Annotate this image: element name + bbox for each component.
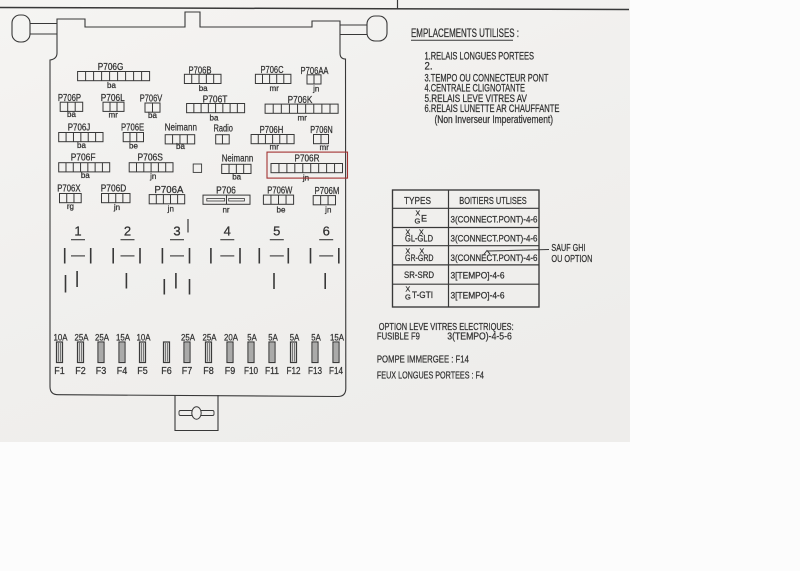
svg-text:mr: mr xyxy=(320,143,330,152)
svg-text:be: be xyxy=(129,142,138,151)
svg-text:P706F: P706F xyxy=(71,153,96,164)
svg-text:Neimann: Neimann xyxy=(165,123,197,134)
svg-text:15A: 15A xyxy=(116,333,130,343)
svg-text:1.RELAIS LONGUES PORTEES: 1.RELAIS LONGUES PORTEES xyxy=(425,50,535,62)
svg-text:SR-SRD: SR-SRD xyxy=(404,270,434,281)
svg-text:P706X: P706X xyxy=(57,184,81,195)
svg-text:20A: 20A xyxy=(224,333,238,343)
svg-text:P706R: P706R xyxy=(295,154,320,165)
svg-text:F1: F1 xyxy=(54,365,65,377)
svg-text:P706AA: P706AA xyxy=(301,66,329,77)
svg-text:Radio: Radio xyxy=(213,123,233,134)
svg-text:3[TEMPO]-4-6: 3[TEMPO]-4-6 xyxy=(451,291,505,302)
svg-text:F9: F9 xyxy=(225,365,236,377)
svg-text:jn: jn xyxy=(167,205,174,214)
svg-text:P706S: P706S xyxy=(137,153,163,164)
svg-text:OU OPTION: OU OPTION xyxy=(551,253,592,265)
svg-text:1: 1 xyxy=(74,224,81,239)
svg-text:FEUX LONGUES PORTEES : F4: FEUX LONGUES PORTEES : F4 xyxy=(377,371,484,382)
svg-text:jn: jn xyxy=(113,203,120,212)
svg-text:T-GTI: T-GTI xyxy=(412,290,433,301)
svg-text:POMPE IMMERGEE : F14: POMPE IMMERGEE : F14 xyxy=(377,355,469,366)
svg-text:mr: mr xyxy=(270,143,280,152)
svg-text:jn: jn xyxy=(324,206,331,215)
svg-text:BOITIERS UTLISES: BOITIERS UTLISES xyxy=(459,196,527,207)
svg-text:3(CONNECT.PONT)-4-6: 3(CONNECT.PONT)-4-6 xyxy=(451,233,538,244)
svg-text:ba: ba xyxy=(77,141,86,150)
svg-text:2: 2 xyxy=(124,224,131,239)
svg-text:P706J: P706J xyxy=(68,123,91,134)
svg-text:ba: ba xyxy=(67,110,76,119)
svg-text:(Non Inverseur Imperativement): (Non Inverseur Imperativement) xyxy=(435,114,554,126)
svg-text:3(CONNECT.PONT)-4-6: 3(CONNECT.PONT)-4-6 xyxy=(451,253,538,264)
svg-text:nr: nr xyxy=(222,206,229,215)
svg-text:4: 4 xyxy=(224,224,231,239)
svg-text:P706D: P706D xyxy=(101,184,127,195)
svg-text:E: E xyxy=(421,214,427,224)
svg-text:F8: F8 xyxy=(203,365,214,377)
svg-text:25A: 25A xyxy=(181,333,195,343)
svg-text:F7: F7 xyxy=(182,365,193,377)
svg-text:10A: 10A xyxy=(137,333,151,343)
svg-text:F12: F12 xyxy=(287,365,301,377)
svg-text:rg: rg xyxy=(67,202,74,211)
svg-text:10A: 10A xyxy=(54,333,68,343)
svg-text:mr: mr xyxy=(298,114,308,123)
svg-text:ba: ba xyxy=(199,84,208,93)
svg-text:G: G xyxy=(405,293,411,302)
svg-text:ba: ba xyxy=(176,142,185,151)
svg-text:G: G xyxy=(415,217,421,226)
svg-text:F4: F4 xyxy=(117,365,128,377)
svg-text:6: 6 xyxy=(323,224,330,239)
svg-text:FUSIBLE F9: FUSIBLE F9 xyxy=(377,332,420,343)
svg-text:Neimann: Neimann xyxy=(222,154,254,165)
svg-text:TYPES: TYPES xyxy=(404,196,431,207)
svg-text:F6: F6 xyxy=(161,365,172,377)
svg-text:ba: ba xyxy=(232,173,241,182)
svg-text:25A: 25A xyxy=(203,333,217,343)
svg-text:ba: ba xyxy=(107,81,116,90)
svg-text:3[TEMPO]-4-6: 3[TEMPO]-4-6 xyxy=(451,270,505,281)
svg-text:SAUF GHI: SAUF GHI xyxy=(551,242,585,254)
svg-text:ba: ba xyxy=(148,111,157,120)
svg-text:EMPLACEMENTS UTILISES :: EMPLACEMENTS UTILISES : xyxy=(411,28,519,40)
svg-text:mr: mr xyxy=(270,84,280,93)
svg-text:5A: 5A xyxy=(247,333,257,343)
svg-text:F3: F3 xyxy=(96,365,107,377)
svg-text:15A: 15A xyxy=(330,333,344,343)
svg-text:25A: 25A xyxy=(95,333,109,343)
svg-text:25A: 25A xyxy=(75,333,89,343)
svg-text:mr: mr xyxy=(109,111,119,120)
svg-text:GL-GLD: GL-GLD xyxy=(405,234,433,245)
svg-text:F13: F13 xyxy=(308,365,322,377)
svg-text:F10: F10 xyxy=(244,365,258,377)
svg-text:ba: ba xyxy=(210,114,219,123)
svg-text:GR-GRD: GR-GRD xyxy=(405,253,434,264)
svg-text:jn: jn xyxy=(149,172,156,181)
svg-text:3(CONNECT.PONT)-4-6: 3(CONNECT.PONT)-4-6 xyxy=(451,214,538,225)
svg-text:F2: F2 xyxy=(75,365,86,377)
svg-text:3: 3 xyxy=(173,224,180,239)
svg-text:ba: ba xyxy=(81,171,90,180)
svg-text:3(TEMPO)-4-5-6: 3(TEMPO)-4-5-6 xyxy=(447,332,512,343)
svg-text:5A: 5A xyxy=(311,333,321,343)
svg-text:F14: F14 xyxy=(329,365,343,377)
svg-text:5A: 5A xyxy=(268,333,278,343)
svg-text:F11: F11 xyxy=(265,365,279,377)
svg-text:5A: 5A xyxy=(290,333,300,343)
svg-text:jn: jn xyxy=(312,85,319,94)
svg-text:5: 5 xyxy=(273,224,280,239)
svg-text:be: be xyxy=(277,206,286,215)
svg-text:2.: 2. xyxy=(425,61,433,73)
svg-text:F5: F5 xyxy=(137,365,148,377)
svg-text:P706E: P706E xyxy=(121,123,144,134)
